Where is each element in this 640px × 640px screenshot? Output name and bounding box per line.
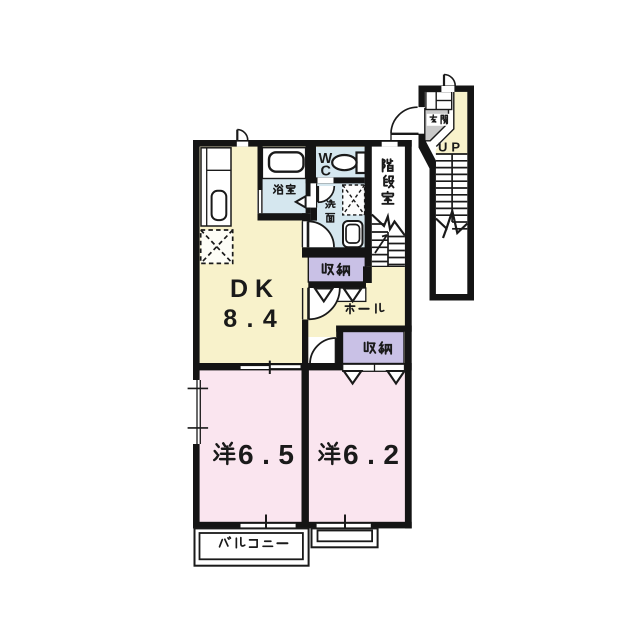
svg-text:DK: DK [230,275,280,303]
svg-text:6.2: 6.2 [343,439,399,470]
svg-text:8.4: 8.4 [223,305,277,333]
svg-text:UP: UP [438,140,464,155]
svg-text:6.5: 6.5 [238,439,294,470]
svg-text:C: C [321,164,332,180]
